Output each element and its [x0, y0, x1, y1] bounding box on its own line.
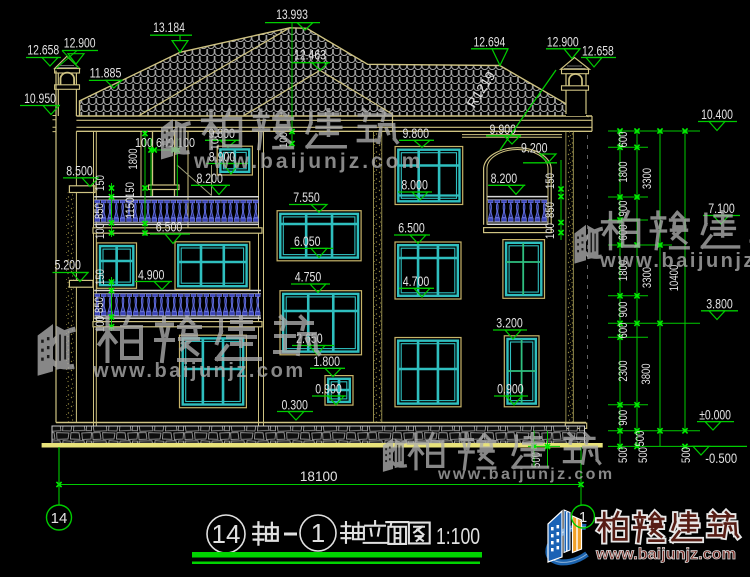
svg-text:7.550: 7.550: [293, 190, 320, 205]
svg-text:8.000: 8.000: [401, 178, 428, 193]
svg-text:850: 850: [545, 202, 557, 218]
svg-text:-0.500: -0.500: [705, 451, 737, 466]
svg-text:8.200: 8.200: [491, 171, 518, 186]
svg-text:600: 600: [616, 322, 630, 338]
svg-text:18100: 18100: [300, 469, 338, 484]
svg-text:6.500: 6.500: [156, 220, 183, 235]
svg-text:900: 900: [616, 410, 630, 426]
svg-text:850: 850: [94, 203, 106, 219]
svg-text:150: 150: [125, 182, 137, 198]
svg-text:500: 500: [633, 430, 647, 446]
svg-text:8.200: 8.200: [196, 171, 223, 186]
svg-text:1150: 1150: [125, 197, 137, 218]
svg-text:4.700: 4.700: [403, 274, 430, 289]
svg-text:4.900: 4.900: [138, 268, 165, 283]
svg-text:3.200: 3.200: [496, 316, 523, 331]
svg-text:www.baijunjz.com: www.baijunjz.com: [437, 466, 615, 483]
svg-text:1: 1: [311, 518, 325, 548]
svg-text:150: 150: [545, 173, 557, 189]
svg-text:1800: 1800: [616, 161, 630, 182]
svg-text:4.750: 4.750: [295, 270, 322, 285]
svg-text:www.baijunjz.com: www.baijunjz.com: [599, 250, 750, 272]
svg-text:5.200: 5.200: [54, 258, 81, 273]
svg-text:12.900: 12.900: [64, 36, 96, 51]
svg-text:150: 150: [95, 175, 107, 191]
svg-text:9.800: 9.800: [403, 126, 430, 141]
svg-text:600: 600: [616, 131, 630, 147]
svg-text:3800: 3800: [639, 363, 653, 384]
svg-text:www.baijunjz.com: www.baijunjz.com: [92, 360, 306, 382]
svg-text:14: 14: [212, 519, 241, 549]
svg-text:12.658: 12.658: [582, 43, 614, 58]
svg-text:12.900: 12.900: [547, 35, 579, 50]
svg-text:850: 850: [94, 297, 106, 313]
svg-text:100: 100: [95, 223, 107, 239]
svg-text:9.900: 9.900: [490, 122, 517, 137]
svg-text:0.900: 0.900: [315, 382, 342, 397]
svg-text:±0.000: ±0.000: [699, 408, 731, 423]
svg-text:3300: 3300: [640, 168, 654, 189]
svg-text:12.658: 12.658: [27, 43, 59, 58]
svg-text:8.500: 8.500: [66, 164, 93, 179]
svg-text:0.300: 0.300: [281, 398, 308, 413]
svg-text:12.694: 12.694: [474, 35, 506, 50]
svg-text:900: 900: [616, 301, 630, 317]
svg-text:500: 500: [616, 447, 630, 463]
svg-text:150: 150: [95, 269, 107, 285]
svg-text:0.900: 0.900: [497, 382, 524, 397]
svg-text:500: 500: [679, 447, 693, 463]
svg-text:1800: 1800: [128, 148, 140, 169]
svg-text:100: 100: [545, 223, 557, 239]
svg-text:6.050: 6.050: [294, 234, 321, 249]
svg-text:6.500: 6.500: [398, 221, 425, 236]
svg-text:11.885: 11.885: [90, 66, 122, 81]
svg-text:10.400: 10.400: [701, 107, 733, 122]
svg-text:14: 14: [51, 510, 68, 527]
svg-text:9.200: 9.200: [521, 141, 548, 156]
svg-text:www.baijunjz.com: www.baijunjz.com: [193, 150, 423, 173]
svg-text:10.950: 10.950: [24, 91, 56, 106]
svg-text:2300: 2300: [616, 360, 630, 381]
svg-text:13.184: 13.184: [153, 20, 185, 35]
svg-text:1: 1: [579, 509, 587, 526]
svg-text:1.800: 1.800: [314, 354, 341, 369]
svg-text:500: 500: [636, 447, 650, 463]
svg-text:13.993: 13.993: [276, 7, 308, 22]
svg-text:12.463: 12.463: [294, 48, 326, 63]
svg-text:www.baijunjz.com: www.baijunjz.com: [595, 546, 736, 563]
svg-text:1:100: 1:100: [436, 523, 480, 549]
svg-text:3.800: 3.800: [706, 297, 733, 312]
